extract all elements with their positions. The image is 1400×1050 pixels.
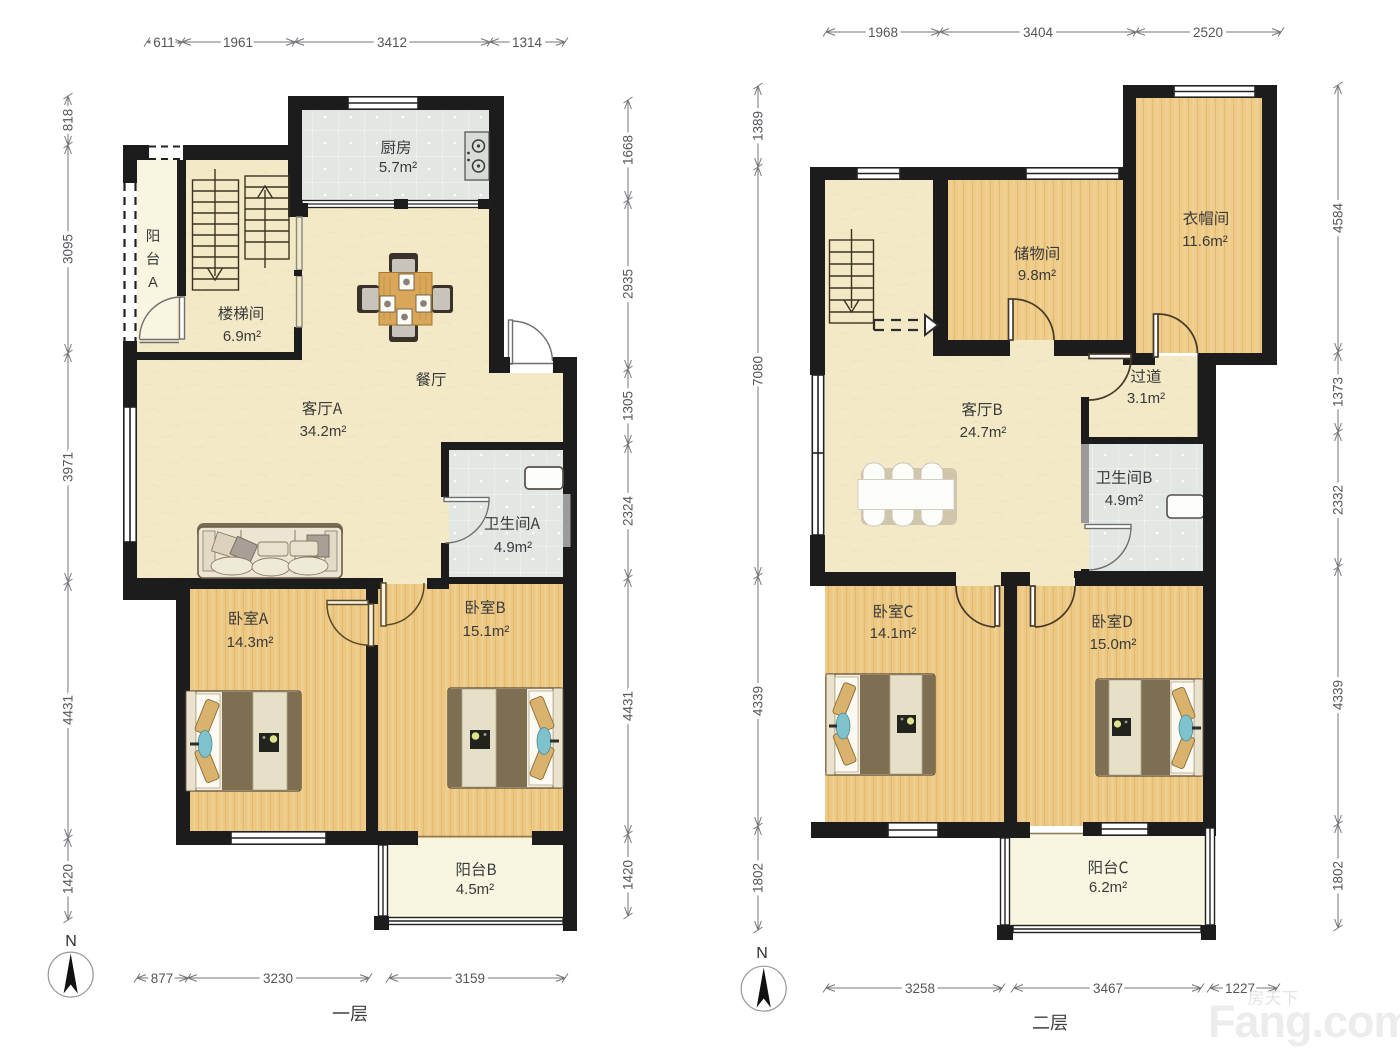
svg-text:4.9m²: 4.9m² <box>1105 492 1143 509</box>
svg-text:3412: 3412 <box>377 35 407 50</box>
svg-text:4339: 4339 <box>1331 680 1346 710</box>
svg-text:1968: 1968 <box>868 25 898 40</box>
svg-text:24.7m²: 24.7m² <box>960 424 1007 441</box>
svg-text:N: N <box>65 933 77 950</box>
svg-text:1802: 1802 <box>1331 861 1346 891</box>
svg-text:34.2m²: 34.2m² <box>300 423 347 440</box>
svg-text:6.2m²: 6.2m² <box>1089 879 1127 896</box>
svg-text:3467: 3467 <box>1093 981 1123 996</box>
svg-text:11.6m²: 11.6m² <box>1182 233 1228 250</box>
svg-text:3971: 3971 <box>61 452 76 482</box>
svg-text:A: A <box>148 275 158 291</box>
svg-text:15.1m²: 15.1m² <box>463 623 510 640</box>
svg-text:877: 877 <box>151 971 174 986</box>
svg-text:2324: 2324 <box>621 495 636 526</box>
svg-text:Fang.com: Fang.com <box>1208 996 1400 1047</box>
svg-text:4339: 4339 <box>751 686 766 716</box>
svg-text:1314: 1314 <box>512 35 543 50</box>
svg-text:1373: 1373 <box>1331 377 1346 407</box>
svg-text:4.9m²: 4.9m² <box>494 539 532 556</box>
svg-text:1305: 1305 <box>621 391 636 421</box>
svg-text:7080: 7080 <box>751 356 766 386</box>
svg-text:4431: 4431 <box>621 691 636 721</box>
svg-text:1420: 1420 <box>621 860 636 890</box>
svg-text:1389: 1389 <box>751 111 766 141</box>
svg-text:4431: 4431 <box>61 695 76 725</box>
svg-text:3230: 3230 <box>263 971 293 986</box>
svg-text:1420: 1420 <box>61 864 76 894</box>
svg-text:1668: 1668 <box>621 135 636 165</box>
svg-text:611: 611 <box>153 35 175 50</box>
svg-text:2332: 2332 <box>1331 485 1346 515</box>
svg-text:14.3m²: 14.3m² <box>227 634 274 651</box>
svg-text:2520: 2520 <box>1193 25 1223 40</box>
svg-text:3404: 3404 <box>1023 25 1054 40</box>
svg-text:4584: 4584 <box>1331 202 1346 233</box>
svg-text:3258: 3258 <box>905 981 935 996</box>
svg-text:3.1m²: 3.1m² <box>1127 390 1165 407</box>
svg-text:3095: 3095 <box>61 234 76 264</box>
svg-text:5.7m²: 5.7m² <box>379 159 417 176</box>
svg-text:15.0m²: 15.0m² <box>1090 636 1137 653</box>
svg-text:1802: 1802 <box>751 863 766 893</box>
svg-text:14.1m²: 14.1m² <box>870 625 917 642</box>
svg-text:N: N <box>756 945 768 962</box>
svg-text:6.9m²: 6.9m² <box>223 328 261 345</box>
svg-text:1961: 1961 <box>223 35 253 50</box>
svg-text:4.5m²: 4.5m² <box>456 881 494 898</box>
svg-text:2935: 2935 <box>621 269 636 299</box>
svg-text:9.8m²: 9.8m² <box>1018 267 1056 284</box>
svg-text:818: 818 <box>61 109 76 132</box>
svg-text:3159: 3159 <box>455 971 485 986</box>
